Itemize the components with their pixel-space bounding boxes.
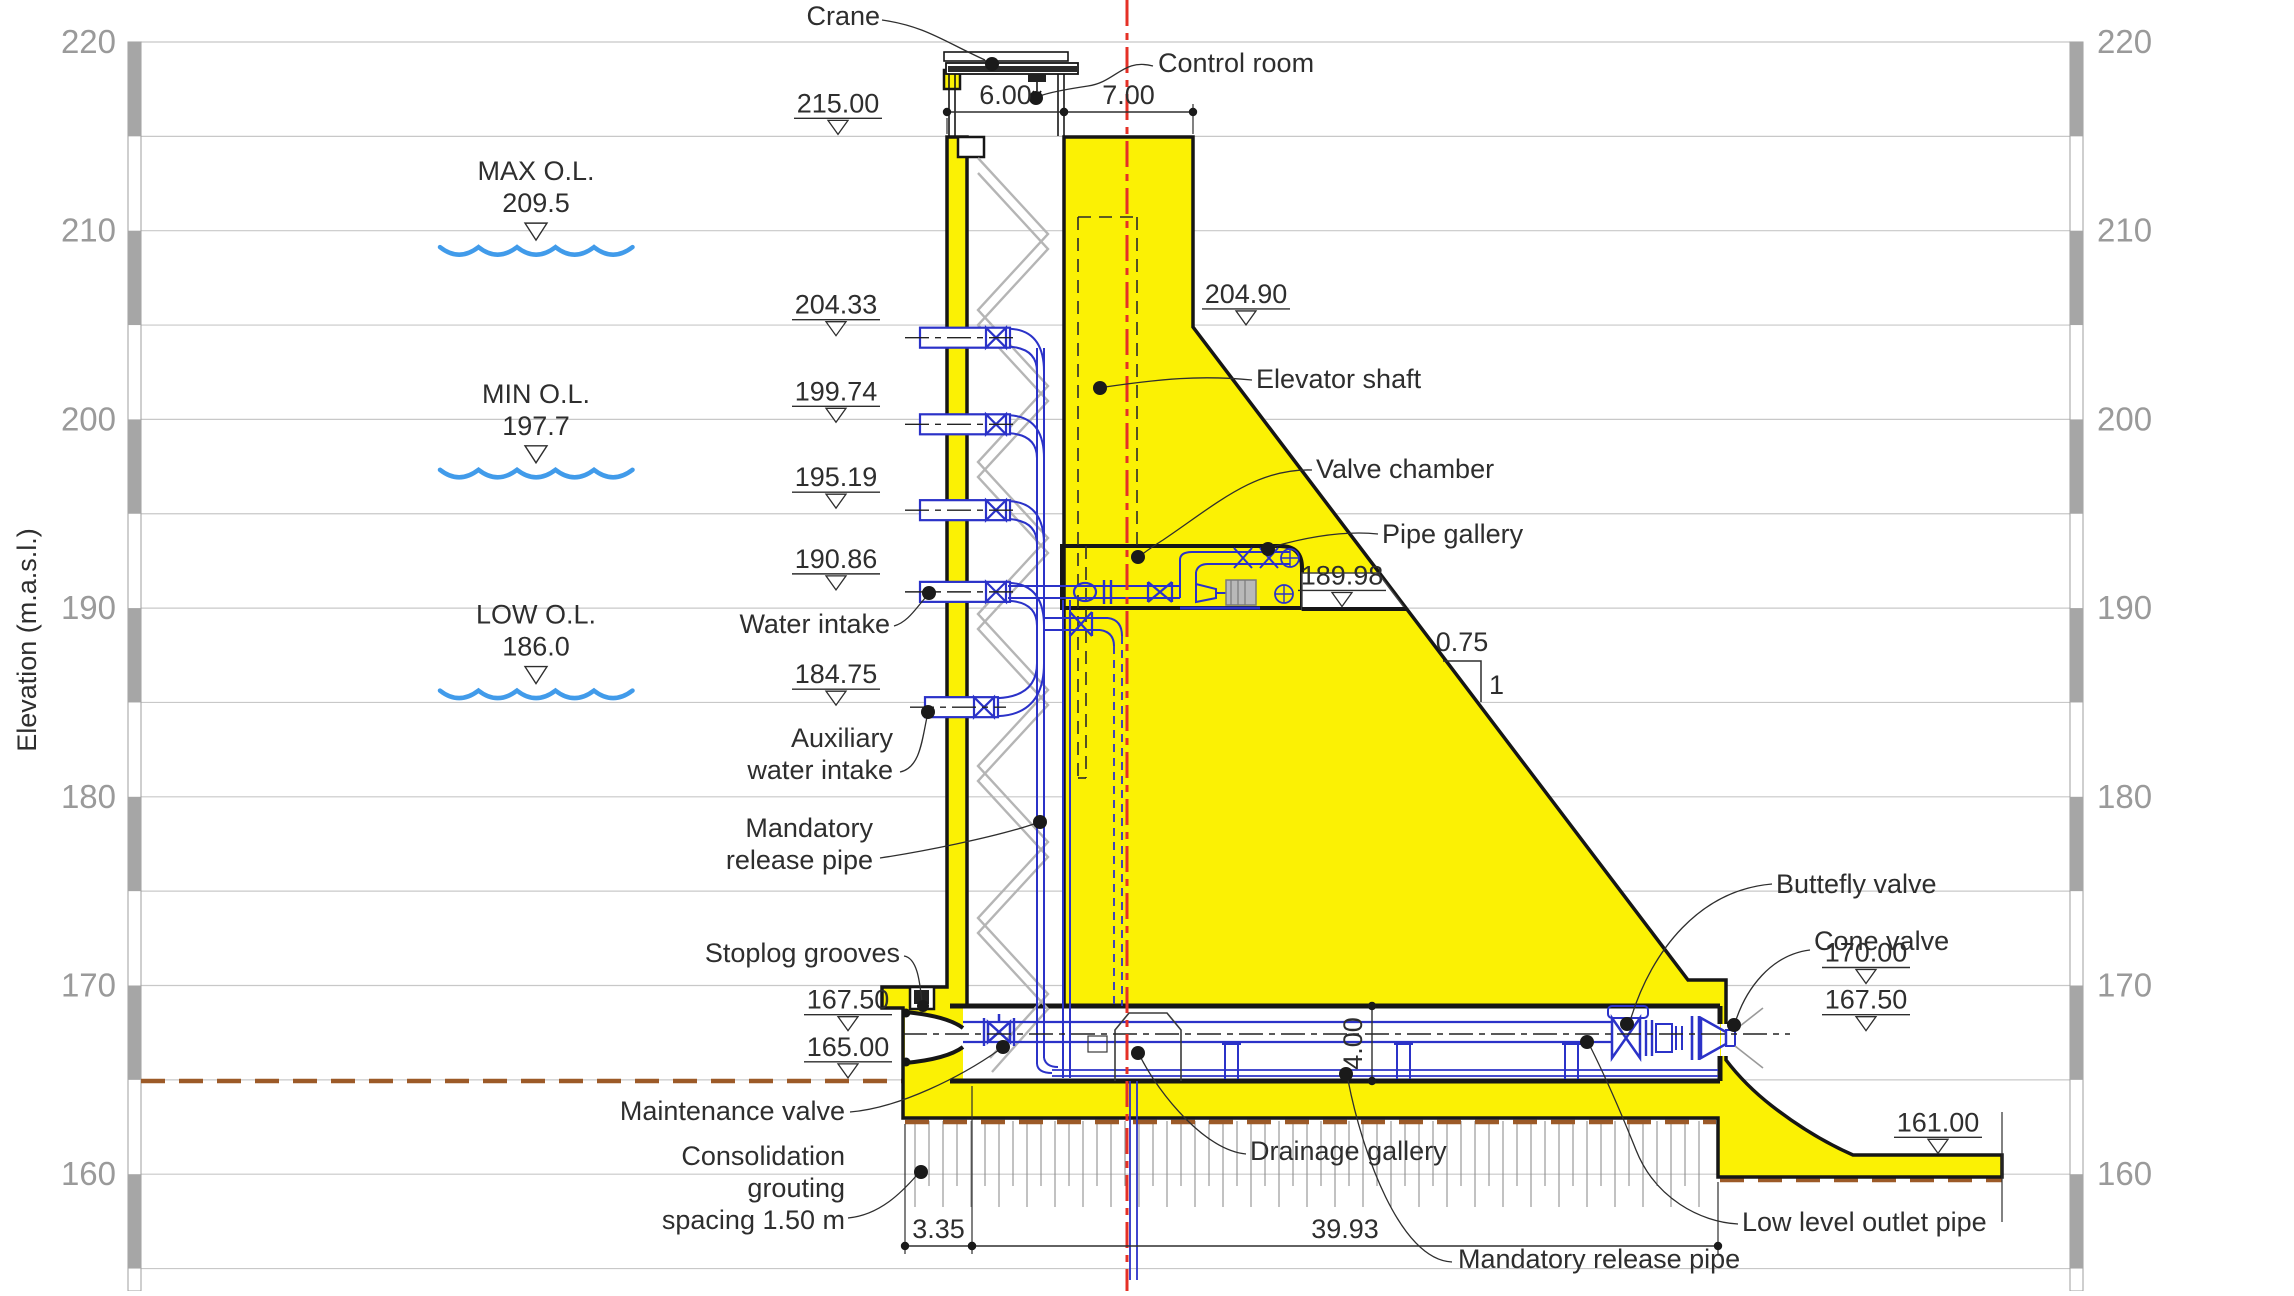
water-level-value: 186.0: [502, 632, 570, 662]
mandatory-release-left-dot: [1033, 815, 1047, 829]
level-marker-value: 165.00: [807, 1032, 890, 1062]
water-level-low-o-l-: LOW O.L.186.0: [440, 600, 633, 699]
water-surface-wave-icon: [440, 247, 633, 255]
low-level-outlet-dot: [1580, 1035, 1594, 1049]
left-axis-tick-190: 190: [61, 589, 116, 626]
left-axis-tick-160: 160: [61, 1155, 116, 1192]
crane-dot: [985, 57, 999, 71]
left-scale-bar-segment: [128, 608, 141, 702]
level-marker-nabla-icon: [826, 408, 846, 422]
level-marker-167-50: 167.50: [1822, 985, 1910, 1031]
level-marker-nabla-icon: [826, 322, 846, 336]
drawing-canvas: 2202102001901801701602202102001901801701…: [0, 0, 2294, 1291]
water-level-name: MIN O.L.: [482, 379, 590, 409]
level-marker-nabla-icon: [1856, 970, 1876, 984]
water-intake-dot: [922, 586, 936, 600]
butterfly-valve-label: Buttefly valve: [1776, 869, 1937, 899]
dimension-tick: [1189, 108, 1197, 116]
level-marker-nabla-icon: [826, 576, 846, 590]
right-axis-tick-180: 180: [2097, 778, 2152, 815]
mandatory-release-pipe-left-label: Mandatoryrelease pipe: [726, 813, 874, 875]
dimension-tick: [901, 1242, 909, 1250]
level-marker-nabla-icon: [838, 1017, 858, 1031]
level-marker-nabla-icon: [838, 1064, 858, 1078]
water-level-value: 209.5: [502, 188, 570, 218]
dimension-value: 39.93: [1311, 1214, 1379, 1244]
level-marker-215-00: 215.00: [794, 88, 882, 134]
left-scale-bar-segment: [128, 231, 141, 325]
left-scale-bar-segment: [128, 42, 141, 136]
stoplog-grooves-label: Stoplog grooves: [705, 938, 900, 968]
right-scale-bar-segment: [2070, 419, 2083, 513]
level-marker-184-75: 184.75: [792, 659, 880, 705]
level-marker-199-74: 199.74: [792, 376, 880, 422]
left-scale-bar-segment: [128, 419, 141, 513]
right-axis-tick-170: 170: [2097, 967, 2152, 1004]
right-axis-tick-220: 220: [2097, 23, 2152, 60]
auxiliary-intake-dot: [921, 705, 935, 719]
dimension-tick: [1368, 1002, 1376, 1010]
dimension-6-00: 6.00: [943, 80, 1068, 116]
level-marker-nabla-icon: [826, 691, 846, 705]
level-marker-value: 167.50: [1825, 985, 1908, 1015]
right-scale-bar-segment: [2070, 797, 2083, 891]
cone-valve-dot: [1727, 1018, 1741, 1032]
axis-title: Elevation (m.a.s.l.): [12, 528, 42, 752]
dimension-tick: [1060, 108, 1068, 116]
level-marker-nabla-icon: [1856, 1017, 1876, 1031]
water-intake-pipe-199.74: [905, 414, 1044, 458]
elevator-shaft-label: Elevator shaft: [1256, 364, 1422, 394]
slope-vertical-value: 1: [1489, 670, 1504, 700]
right-scale-bar-segment: [2070, 231, 2083, 325]
left-axis-tick-220: 220: [61, 23, 116, 60]
maintenance-valve-dot: [996, 1040, 1010, 1054]
bellmouth-lip-bulb-bottom: [902, 1058, 911, 1067]
level-marker-167-50: 167.50: [804, 985, 892, 1031]
drainage-gallery-label: Drainage gallery: [1250, 1136, 1447, 1166]
water-intake-pipe-195.19: [905, 500, 1044, 544]
right-scale-bar-segment: [2070, 42, 2083, 136]
left-scale-bar-segment: [128, 797, 141, 891]
water-level-nabla-icon: [525, 667, 547, 684]
dimension-value: 3.35: [912, 1214, 965, 1244]
water-level-nabla-icon: [525, 223, 547, 240]
level-marker-nabla-icon: [1928, 1139, 1948, 1153]
consolidation-leader: [848, 1175, 917, 1218]
valve-chamber-label: Valve chamber: [1316, 454, 1494, 484]
dimension-tick: [943, 108, 951, 116]
water-intake-label: Water intake: [739, 609, 890, 639]
left-axis-tick-180: 180: [61, 778, 116, 815]
level-marker-value: 190.86: [795, 544, 878, 574]
water-surface-wave-icon: [440, 470, 633, 478]
left-scale-bar-segment: [128, 986, 141, 1080]
water-level-name: LOW O.L.: [476, 600, 596, 630]
elevation-axis-title: Elevation (m.a.s.l.): [12, 528, 42, 752]
level-marker-195-19: 195.19: [792, 462, 880, 508]
crane-rail-beam: [948, 66, 1077, 72]
stoplog-dot: [917, 1000, 929, 1012]
water-level-value: 197.7: [502, 411, 570, 441]
water-level-name: MAX O.L.: [477, 156, 594, 186]
level-marker-value: 189.98: [1301, 560, 1384, 590]
intake-elbow: [1010, 501, 1044, 544]
intake-elbow: [998, 663, 1037, 698]
level-marker-value: 167.50: [807, 985, 890, 1015]
level-marker-204-33: 204.33: [792, 290, 880, 336]
dam-cross-section-drawing: 2202102001901801701602202102001901801701…: [0, 0, 2294, 1291]
dimension-3-35: 3.35: [901, 1214, 976, 1250]
level-marker-204-90: 204.90: [1202, 279, 1290, 325]
level-marker-value: 195.19: [795, 462, 878, 492]
low-level-outlet-pipe-label: Low level outlet pipe: [1742, 1207, 1987, 1237]
crane-label: Crane: [806, 1, 880, 31]
level-marker-value: 199.74: [795, 376, 878, 406]
water-surface-wave-icon: [440, 691, 633, 699]
intake-elbow: [1010, 601, 1037, 626]
left-axis-tick-210: 210: [61, 212, 116, 249]
left-scale-bar-segment: [128, 1174, 141, 1268]
right-scale-bar-segment: [2070, 1174, 2083, 1268]
left-axis-tick-200: 200: [61, 400, 116, 437]
water-level-nabla-icon: [525, 446, 547, 463]
pipe-gallery-label: Pipe gallery: [1382, 519, 1524, 549]
level-marker-value: 215.00: [797, 88, 880, 118]
drainage-gallery-dot: [1131, 1046, 1145, 1060]
right-axis-tick-200: 200: [2097, 400, 2152, 437]
slope-horizontal-value: 0.75: [1436, 627, 1489, 657]
maintenance-valve-label: Maintenance valve: [620, 1096, 845, 1126]
dimension-value: 4.00: [1338, 1017, 1368, 1070]
crane-top-plate: [944, 52, 1068, 61]
level-marker-value: 184.75: [795, 659, 878, 689]
pipe-gallery-dot: [1261, 542, 1275, 556]
auxiliary-water-intake-label: Auxiliarywater intake: [746, 723, 893, 785]
right-axis-tick-190: 190: [2097, 589, 2152, 626]
dimension-tick: [1368, 1077, 1376, 1085]
dimension-value: 7.00: [1102, 80, 1155, 110]
mandatory-release-pipe-bottom-label: Mandatory release pipe: [1458, 1244, 1740, 1274]
right-axis-tick-160: 160: [2097, 1155, 2152, 1192]
cone-valve-label: Cone valve: [1814, 926, 1949, 956]
level-marker-value: 204.33: [795, 290, 878, 320]
elevator-shaft-dot: [1093, 381, 1107, 395]
control-room-label: Control room: [1158, 48, 1314, 78]
water-intake-pipe-204.33: [905, 328, 1044, 372]
crest-slot: [958, 137, 984, 157]
water-levels: MAX O.L.209.5MIN O.L.197.7LOW O.L.186.0: [440, 156, 633, 698]
valve-chamber-dot: [1131, 550, 1145, 564]
butterfly-valve-dot: [1620, 1017, 1634, 1031]
level-marker-161-00: 161.00: [1894, 1107, 1982, 1153]
auxiliary-intake-leader: [900, 717, 927, 772]
level-marker-value: 204.90: [1205, 279, 1288, 309]
right-scale-bar-segment: [2070, 986, 2083, 1080]
dimension-value: 6.00: [979, 80, 1032, 110]
level-marker-165-00: 165.00: [804, 1032, 892, 1078]
consolidation-grouting-label: Consolidationgroutingspacing 1.50 m: [662, 1141, 845, 1235]
level-marker-value: 161.00: [1897, 1107, 1980, 1137]
right-axis-tick-210: 210: [2097, 212, 2152, 249]
water-level-max-o-l-: MAX O.L.209.5: [440, 156, 633, 255]
discharge-spray: [1735, 1008, 1763, 1068]
left-axis-tick-170: 170: [61, 967, 116, 1004]
level-marker-nabla-icon: [1236, 311, 1256, 325]
level-marker-nabla-icon: [828, 120, 848, 134]
consolidation-dot: [914, 1165, 928, 1179]
water-intake-pipes: [905, 328, 1044, 717]
water-level-min-o-l-: MIN O.L.197.7: [440, 379, 633, 478]
level-marker-nabla-icon: [826, 494, 846, 508]
dimension-tick: [968, 1242, 976, 1250]
level-marker-190-86: 190.86: [792, 544, 880, 590]
right-scale-bar-segment: [2070, 608, 2083, 702]
